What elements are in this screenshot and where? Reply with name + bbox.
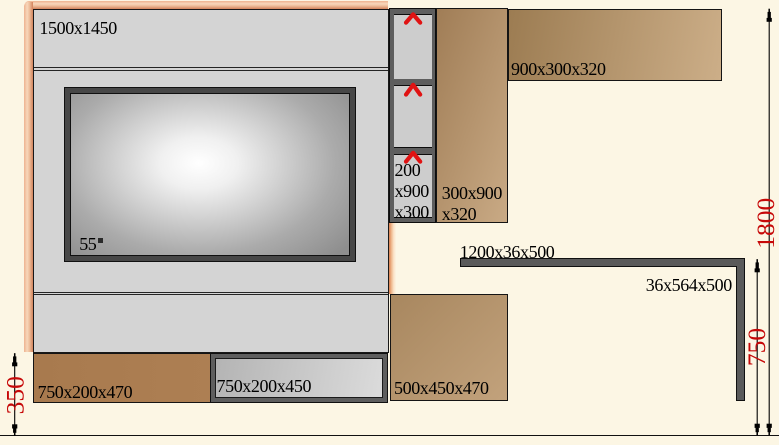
svg-text:750: 750	[742, 328, 771, 366]
svg-text:350: 350	[1, 376, 30, 414]
svg-text:1800: 1800	[751, 198, 779, 249]
